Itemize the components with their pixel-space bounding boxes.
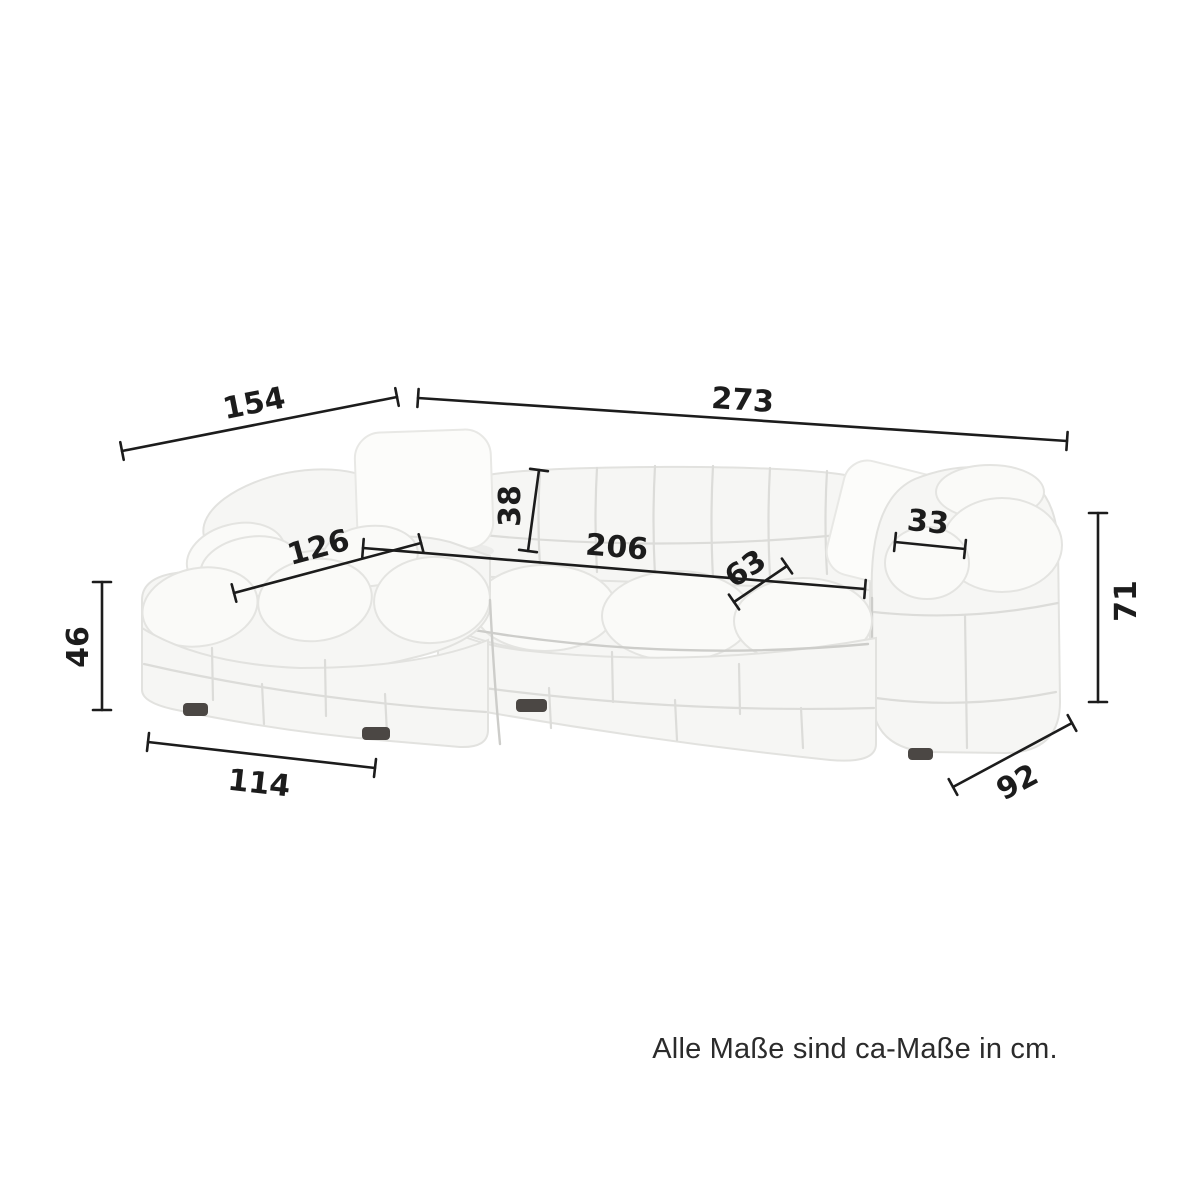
dim-label-armrest-width: 33 [905,503,950,542]
dim-line-71 [1089,513,1107,702]
caption-unit-note: Alle Maße sind ca-Maße in cm. [652,1033,1057,1066]
dim-label-body-depth: 92 [991,757,1044,808]
diagram-graphic: 154 273 38 33 126 206 63 71 46 114 92 [0,0,1200,1200]
dim-label-backrest-height: 38 [493,485,528,527]
sofa-dimension-diagram: 154 273 38 33 126 206 63 71 46 114 92 Al… [0,0,1200,1200]
dim-label-seat-width: 206 [584,528,649,568]
dim-label-total-height: 71 [1109,580,1144,622]
sofa-illustration [136,429,1062,761]
right-armrest [872,465,1062,753]
dim-label-chaise-front-width: 114 [226,763,292,805]
dim-label-seat-height: 46 [61,626,96,668]
dim-label-total-width: 273 [710,381,775,420]
